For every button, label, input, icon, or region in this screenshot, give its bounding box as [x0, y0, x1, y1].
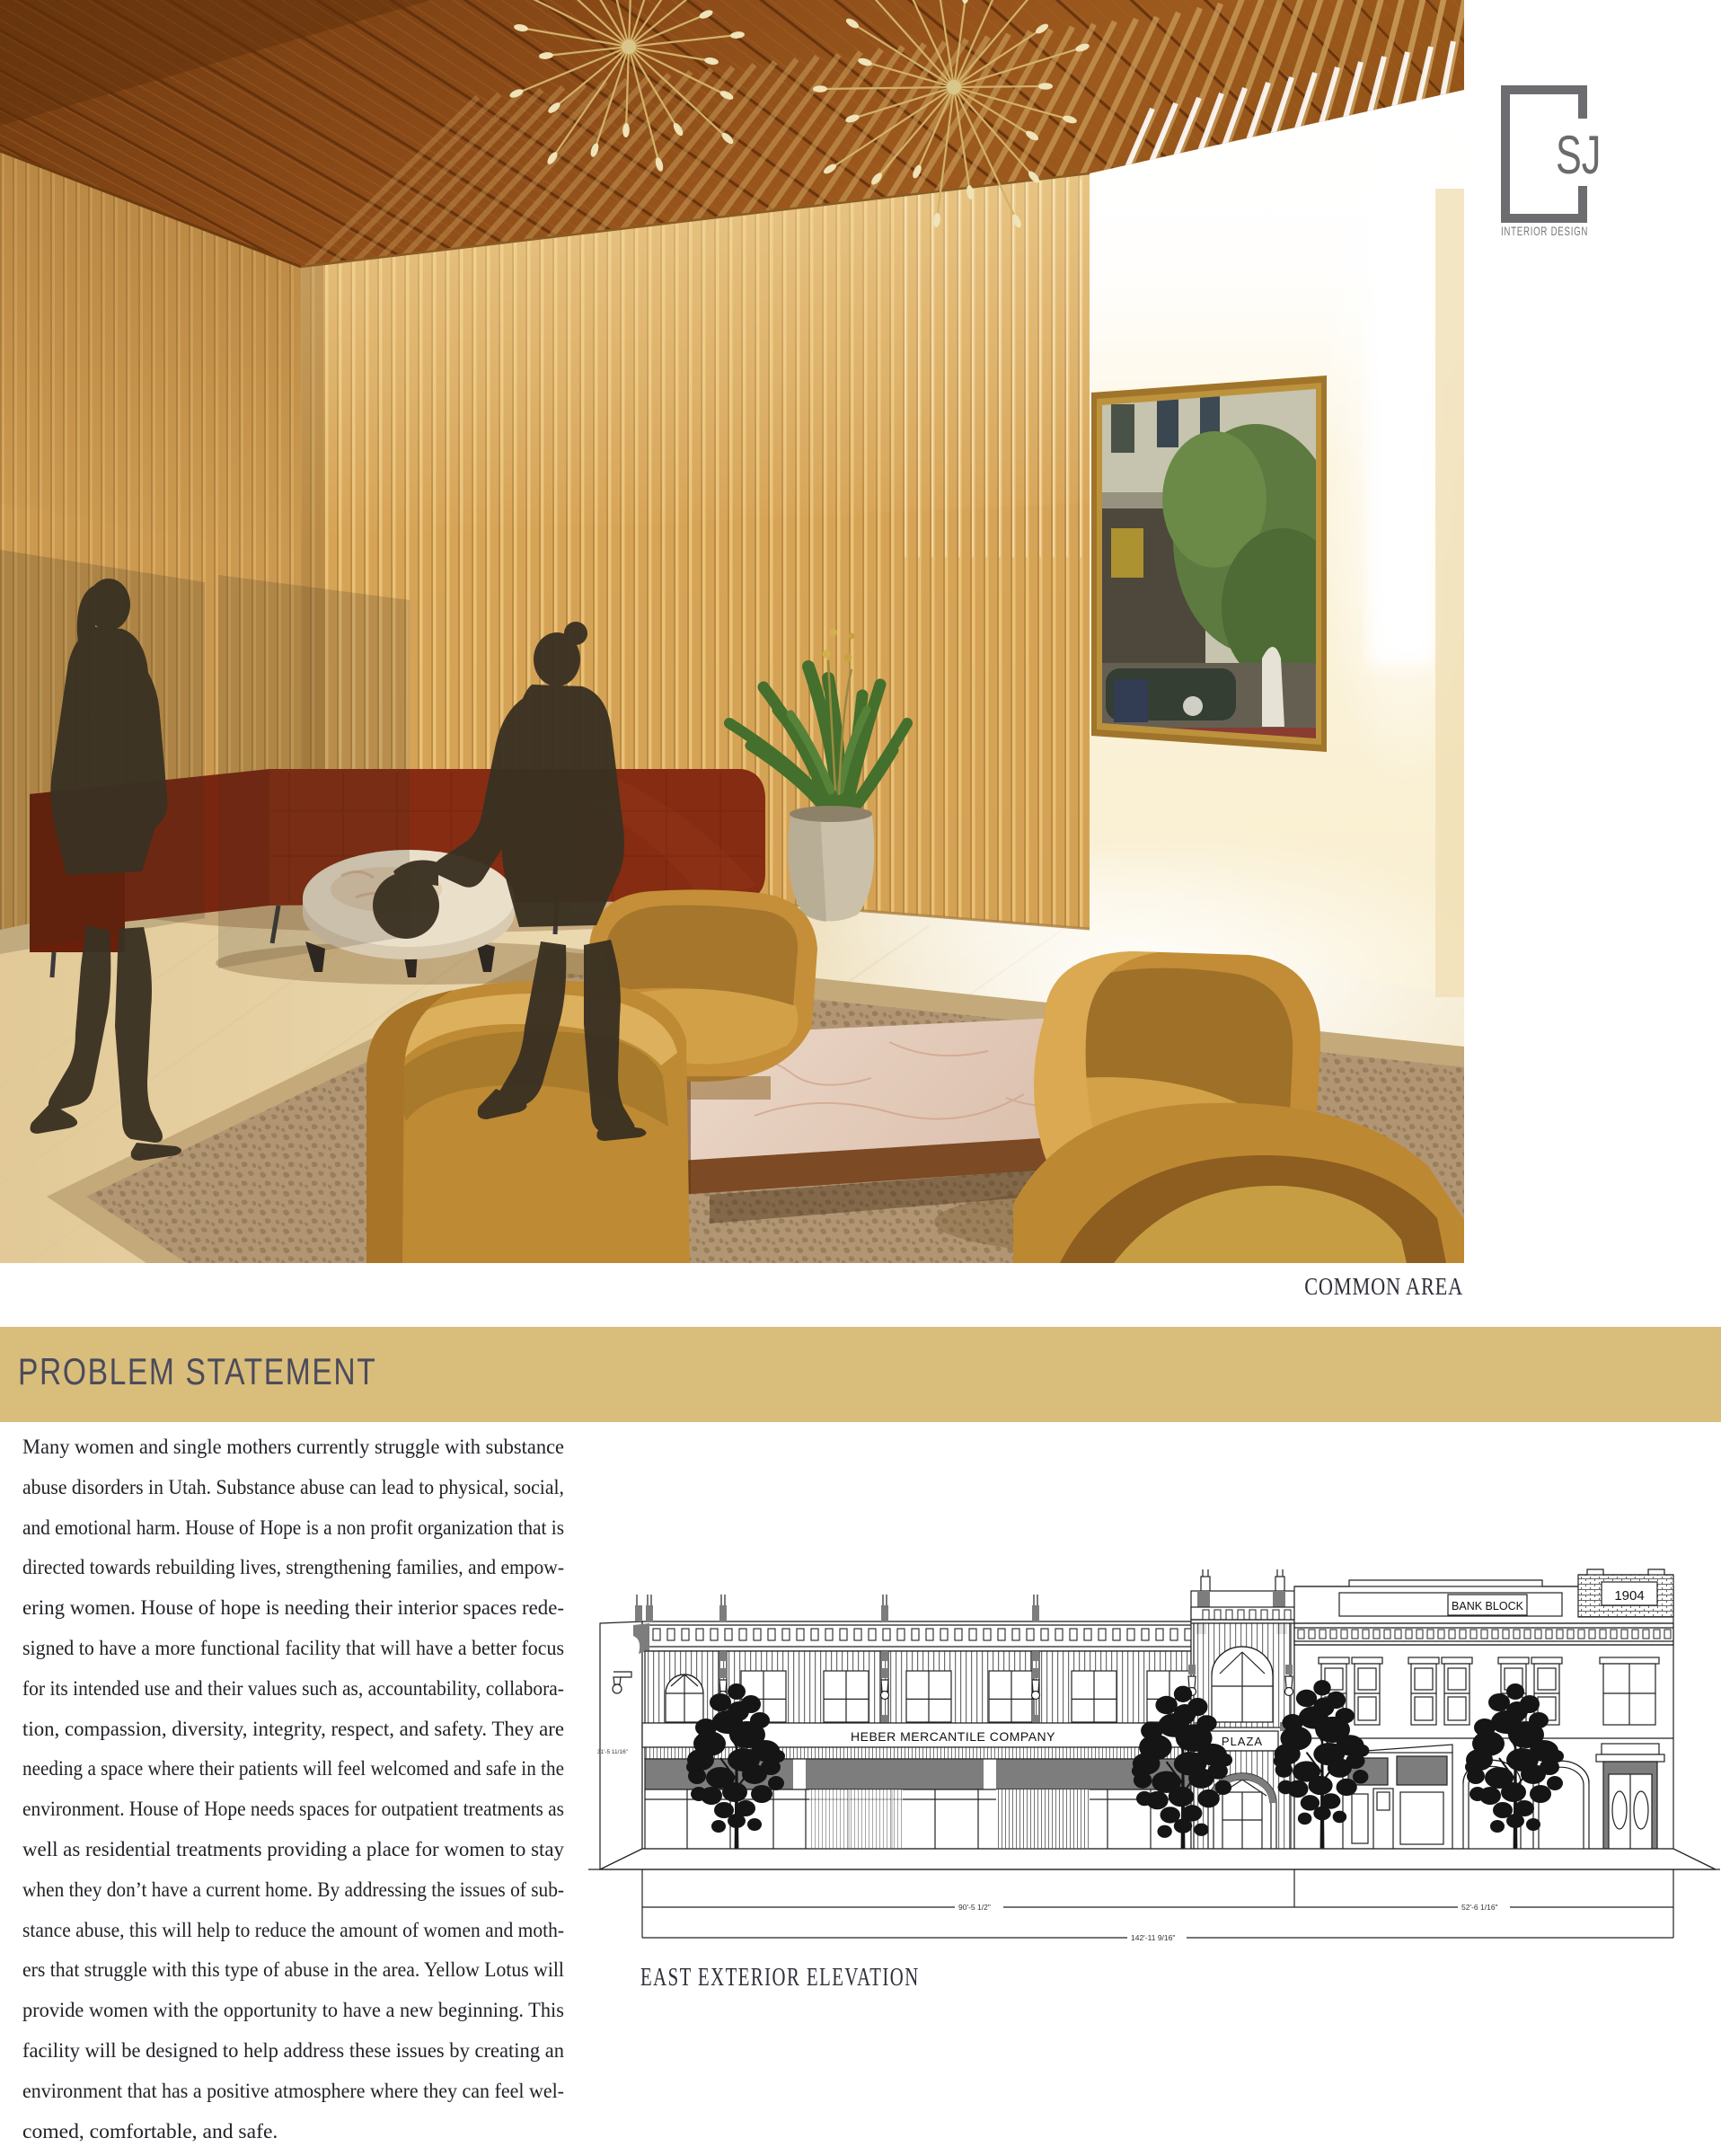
- svg-text:52'-6 1/16": 52'-6 1/16": [1461, 1903, 1498, 1912]
- svg-text:BANK BLOCK: BANK BLOCK: [1452, 1600, 1524, 1613]
- svg-text:HEBER MERCANTILE COMPANY: HEBER MERCANTILE COMPANY: [851, 1729, 1055, 1744]
- svg-text:INTERIOR DESIGN: INTERIOR DESIGN: [1501, 225, 1588, 239]
- svg-text:31'-5 11/16": 31'-5 11/16": [597, 1749, 629, 1755]
- svg-text:PLAZA: PLAZA: [1222, 1735, 1263, 1748]
- svg-text:90'-5 1/2": 90'-5 1/2": [958, 1903, 991, 1912]
- svg-text:SJ: SJ: [1556, 126, 1601, 186]
- svg-text:1904: 1904: [1614, 1588, 1644, 1604]
- svg-text:142'-11 9/16": 142'-11 9/16": [1131, 1933, 1175, 1942]
